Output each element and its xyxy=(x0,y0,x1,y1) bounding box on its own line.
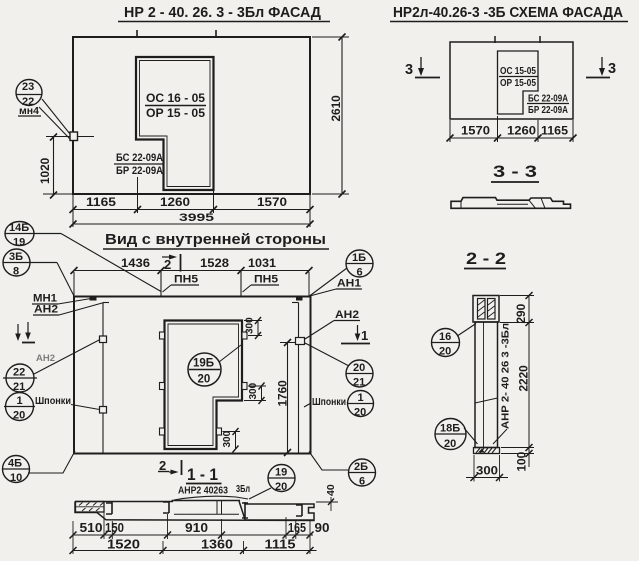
svg-text:БС 22-09А: БС 22-09А xyxy=(528,94,568,105)
svg-text:1Б: 1Б xyxy=(352,252,366,264)
svg-text:20: 20 xyxy=(444,438,456,450)
svg-text:АН2: АН2 xyxy=(34,304,58,316)
svg-text:40: 40 xyxy=(325,484,337,496)
svg-text:3Б: 3Б xyxy=(9,251,23,263)
svg-text:БР 22-09А: БР 22-09А xyxy=(528,105,568,116)
svg-text:ПН5: ПН5 xyxy=(254,274,278,286)
svg-text:ОР 15 - 05: ОР 15 - 05 xyxy=(146,106,205,120)
svg-text:20: 20 xyxy=(354,407,366,419)
svg-text:300: 300 xyxy=(222,430,233,447)
svg-text:20: 20 xyxy=(275,481,287,493)
svg-text:165: 165 xyxy=(288,521,306,535)
svg-text:БР 22-09А: БР 22-09А xyxy=(116,165,163,177)
svg-text:1165: 1165 xyxy=(541,124,568,138)
svg-text:21: 21 xyxy=(13,381,25,393)
svg-text:3: 3 xyxy=(405,62,413,78)
svg-text:1031: 1031 xyxy=(248,256,276,270)
svg-text:1: 1 xyxy=(17,395,23,407)
svg-text:22: 22 xyxy=(13,367,25,379)
svg-text:3Бл: 3Бл xyxy=(236,484,250,495)
svg-text:1: 1 xyxy=(358,392,364,404)
svg-text:1: 1 xyxy=(361,328,368,343)
svg-text:ОС 16 - 05: ОС 16 - 05 xyxy=(146,91,205,105)
svg-text:90: 90 xyxy=(315,521,330,535)
svg-text:300: 300 xyxy=(476,464,498,478)
svg-text:АН1: АН1 xyxy=(337,278,361,290)
svg-text:АНР2 40263: АНР2 40263 xyxy=(178,486,228,497)
svg-text:Шпонки: Шпонки xyxy=(312,397,346,408)
svg-text:ПН5: ПН5 xyxy=(174,274,198,286)
svg-text:20: 20 xyxy=(198,374,211,386)
svg-text:2: 2 xyxy=(164,257,171,272)
svg-text:4Б: 4Б xyxy=(8,458,22,470)
svg-text:1436: 1436 xyxy=(121,256,150,270)
svg-text:2: 2 xyxy=(159,458,166,473)
svg-text:1260: 1260 xyxy=(507,124,536,138)
svg-text:Вид с внутренней стороны: Вид с внутренней стороны xyxy=(105,231,326,248)
svg-text:20: 20 xyxy=(353,362,365,374)
svg-text:2610: 2610 xyxy=(329,95,343,122)
svg-text:АН2: АН2 xyxy=(335,309,359,321)
svg-text:18Б: 18Б xyxy=(440,423,460,435)
svg-text:1760: 1760 xyxy=(276,380,290,407)
svg-text:мн4: мн4 xyxy=(19,105,39,117)
svg-text:1520: 1520 xyxy=(107,538,140,552)
svg-text:1020: 1020 xyxy=(38,157,52,184)
svg-text:1570: 1570 xyxy=(461,124,490,138)
svg-text:3 - 3: 3 - 3 xyxy=(493,163,537,181)
svg-text:ОР 15-05: ОР 15-05 xyxy=(500,78,536,89)
svg-text:БС 22-09А: БС 22-09А xyxy=(116,152,163,164)
svg-text:НР 2 - 40. 26. 3 - 3Бл ФАСАД: НР 2 - 40. 26. 3 - 3Бл ФАСАД xyxy=(124,4,321,21)
svg-text:21: 21 xyxy=(353,377,365,389)
svg-text:НР2л-40.26-3 -3Б СХЕМА ФАСАДА: НР2л-40.26-3 -3Б СХЕМА ФАСАДА xyxy=(393,5,623,21)
svg-text:910: 910 xyxy=(185,521,208,535)
svg-text:2 - 2: 2 - 2 xyxy=(466,250,506,268)
svg-text:10: 10 xyxy=(10,472,22,484)
svg-text:3: 3 xyxy=(608,61,616,77)
svg-text:510: 510 xyxy=(80,521,103,535)
svg-text:300: 300 xyxy=(248,382,259,399)
svg-text:150: 150 xyxy=(105,521,124,535)
svg-text:2Б: 2Б xyxy=(354,461,368,473)
svg-text:АН2: АН2 xyxy=(36,353,55,364)
svg-text:20: 20 xyxy=(13,410,25,422)
svg-text:19: 19 xyxy=(13,237,25,249)
svg-text:8: 8 xyxy=(13,266,19,278)
svg-text:100: 100 xyxy=(515,451,529,471)
svg-text:1165: 1165 xyxy=(86,195,117,209)
svg-text:6: 6 xyxy=(359,476,365,488)
svg-text:290: 290 xyxy=(514,303,528,323)
svg-text:20: 20 xyxy=(439,346,451,358)
svg-text:Шпонки: Шпонки xyxy=(35,396,71,407)
svg-text:14Б: 14Б xyxy=(9,222,29,234)
svg-text:1528: 1528 xyxy=(200,256,229,270)
svg-text:ОС 15-05: ОС 15-05 xyxy=(500,66,536,77)
svg-text:1570: 1570 xyxy=(257,195,287,209)
svg-text:19: 19 xyxy=(275,467,287,479)
svg-text:1115: 1115 xyxy=(265,538,296,552)
svg-text:16: 16 xyxy=(439,331,451,343)
svg-text:1260: 1260 xyxy=(160,195,190,209)
svg-text:300: 300 xyxy=(245,317,256,334)
svg-text:3995: 3995 xyxy=(179,212,214,224)
svg-text:19Б: 19Б xyxy=(193,358,214,370)
svg-text:23: 23 xyxy=(22,81,34,93)
svg-text:2220: 2220 xyxy=(517,365,531,392)
svg-text:АНР 2- 40 26 3 -3Бл: АНР 2- 40 26 3 -3Бл xyxy=(501,323,512,429)
svg-text:1360: 1360 xyxy=(201,538,233,552)
svg-text:1 - 1: 1 - 1 xyxy=(187,466,218,484)
